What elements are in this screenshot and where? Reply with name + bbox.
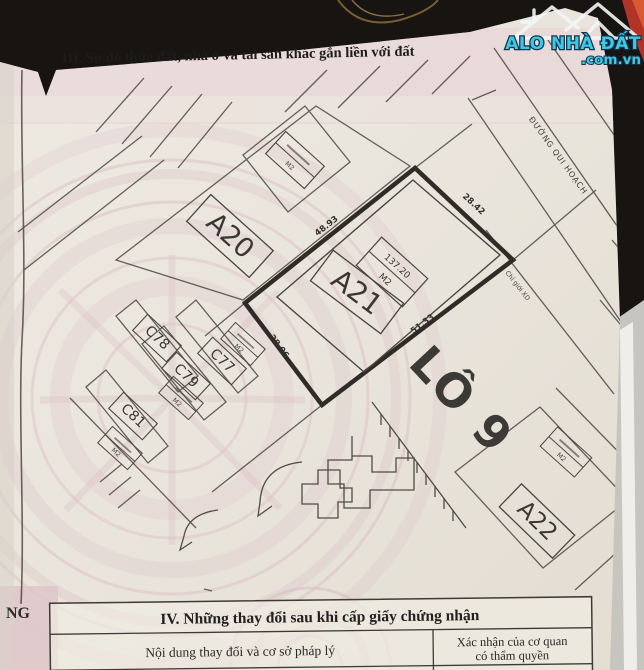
logo-domain-text: .com.vn [581, 52, 641, 68]
page-left-shading [0, 60, 14, 670]
photo-frame: A20 A21 A22 C78 C79 C77 [0, 0, 644, 670]
section-iv-table: IV. Những thay đổi sau khi cấp giấy chứn… [50, 597, 593, 670]
left-edge-partial-text: NG [6, 605, 31, 622]
column-left-header: Nội dung thay đổi và cơ sở pháp lý [145, 643, 335, 660]
logo-brand-text: ALO NHÀ ĐẤT [505, 30, 641, 54]
column-right-header-line1: Xác nhận của cơ quan [457, 634, 569, 649]
table-column-divider [433, 630, 434, 670]
certificate-photo: A20 A21 A22 C78 C79 C77 [0, 0, 644, 670]
column-right-header-line2: có thẩm quyền [475, 648, 550, 663]
